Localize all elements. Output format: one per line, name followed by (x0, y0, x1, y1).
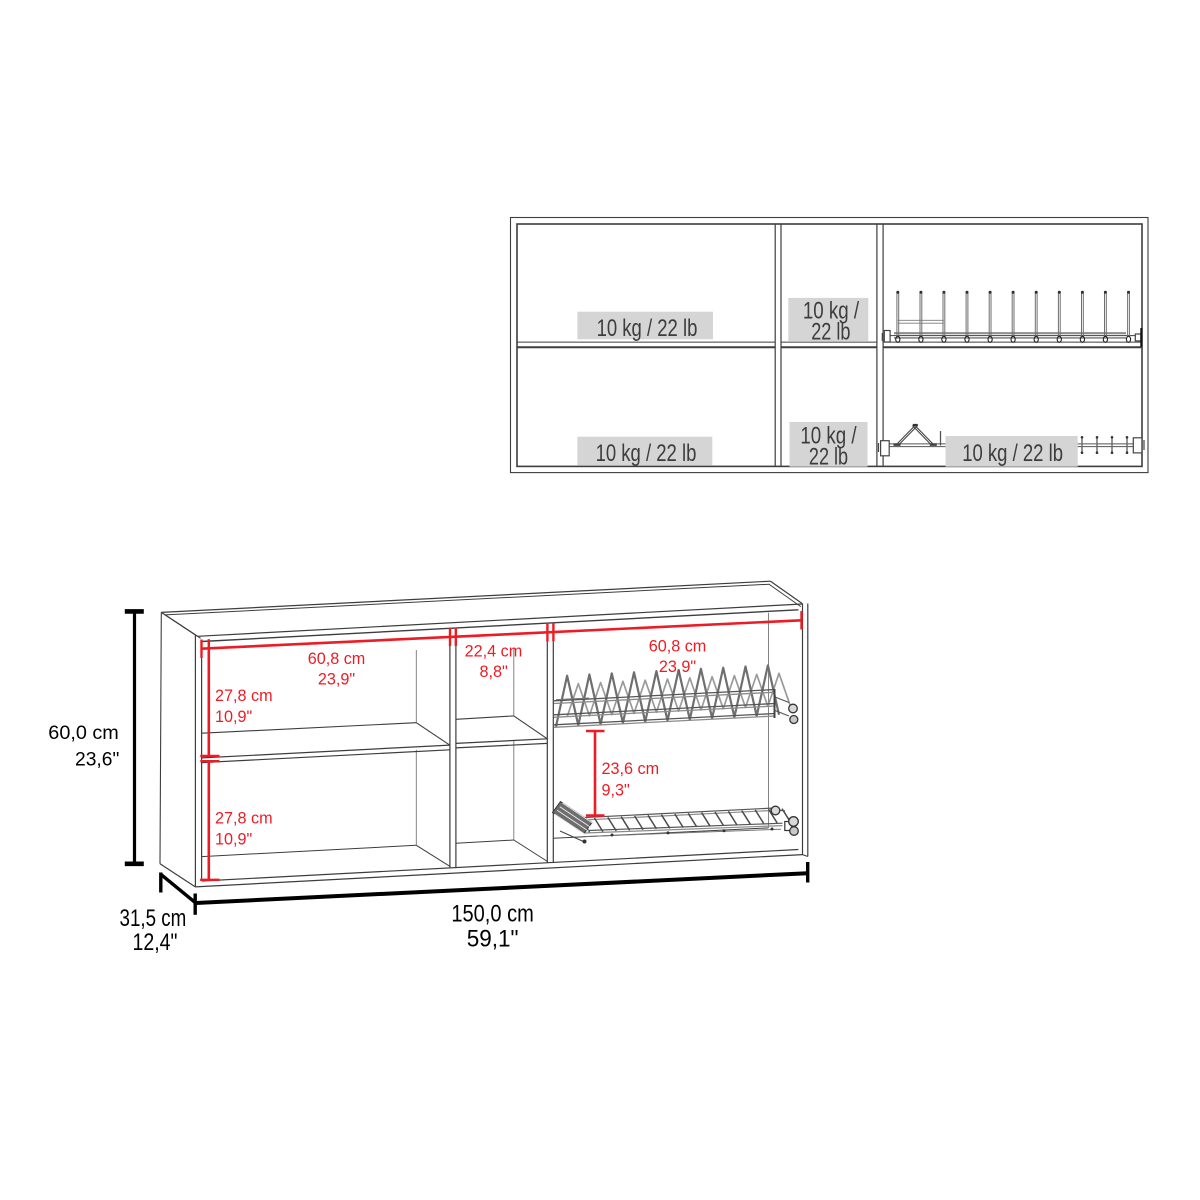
svg-text:23,6": 23,6" (75, 748, 119, 770)
svg-text:27,8 cm: 27,8 cm (215, 809, 273, 827)
svg-text:10 kg / 22 lb: 10 kg / 22 lb (597, 315, 698, 342)
svg-text:23,6 cm: 23,6 cm (602, 760, 660, 778)
svg-text:23,9": 23,9" (318, 670, 356, 688)
svg-text:10 kg / 22 lb: 10 kg / 22 lb (962, 440, 1063, 467)
svg-text:8,8": 8,8" (479, 663, 508, 681)
svg-text:10 kg / 22 lb: 10 kg / 22 lb (596, 440, 697, 467)
svg-text:60,8 cm: 60,8 cm (649, 637, 707, 655)
svg-text:27,8 cm: 27,8 cm (215, 687, 273, 705)
svg-text:60,8 cm: 60,8 cm (308, 650, 366, 668)
svg-text:9,3": 9,3" (602, 781, 631, 799)
svg-text:22 lb: 22 lb (811, 319, 850, 346)
svg-text:12,4": 12,4" (133, 929, 178, 956)
svg-text:10,9": 10,9" (215, 708, 253, 726)
svg-text:60,0 cm: 60,0 cm (48, 722, 118, 744)
svg-text:23,9": 23,9" (659, 658, 697, 676)
svg-text:22 lb: 22 lb (809, 443, 848, 470)
svg-text:10,9": 10,9" (215, 831, 253, 849)
svg-text:150,0 cm: 150,0 cm (451, 901, 533, 927)
svg-text:59,1": 59,1" (467, 926, 519, 952)
svg-text:22,4 cm: 22,4 cm (465, 642, 523, 660)
